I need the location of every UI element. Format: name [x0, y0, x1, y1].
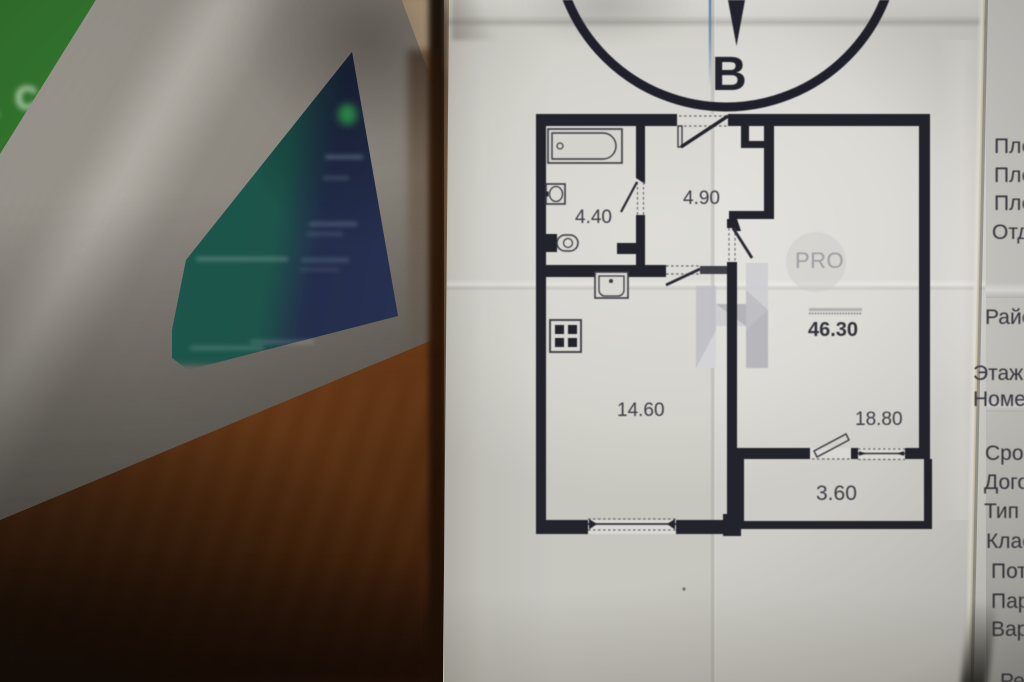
svg-text:Вар: Вар	[991, 618, 1024, 641]
svg-text:Пло: Пло	[994, 192, 1024, 215]
svg-text:Пло: Пло	[994, 135, 1024, 158]
svg-text:Тип: Тип	[984, 500, 1019, 523]
svg-text:4.40: 4.40	[575, 207, 612, 228]
svg-text:46.30: 46.30	[808, 319, 858, 341]
svg-text:PRO: PRO	[795, 248, 844, 273]
svg-text:Пар: Пар	[991, 590, 1024, 613]
svg-text:Этаж: Этаж	[973, 362, 1023, 385]
svg-text:Срок: Срок	[985, 442, 1024, 465]
svg-text:Дого: Дого	[984, 471, 1024, 494]
svg-text:18.80: 18.80	[855, 409, 903, 430]
svg-text:3.60: 3.60	[816, 482, 857, 505]
svg-text:Пото: Пото	[991, 560, 1024, 583]
svg-text:Отд: Отд	[992, 221, 1024, 244]
svg-text:В: В	[712, 48, 747, 101]
svg-text:Клас: Клас	[986, 530, 1024, 553]
svg-text:4.90: 4.90	[683, 188, 720, 209]
svg-text:14.60: 14.60	[617, 400, 665, 421]
svg-text:Райо: Райо	[985, 306, 1024, 329]
svg-text:Номе: Номе	[973, 388, 1024, 411]
svg-text:Рег: Рег	[1000, 670, 1024, 682]
svg-text:Пло: Пло	[994, 164, 1024, 187]
